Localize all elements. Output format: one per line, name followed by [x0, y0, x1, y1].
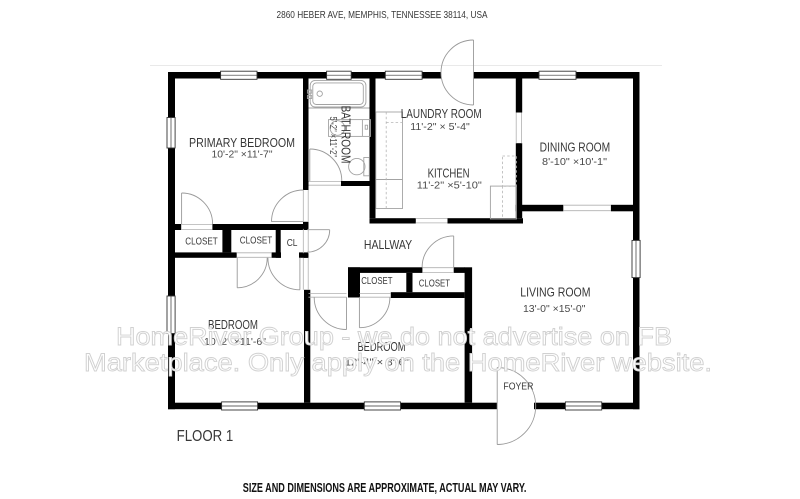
svg-text:LAUNDRY ROOM: LAUNDRY ROOM — [401, 106, 482, 121]
svg-text:13'-0" ×15'-0": 13'-0" ×15'-0" — [523, 303, 586, 315]
svg-text:CLOSET: CLOSET — [419, 278, 450, 289]
svg-text:CLOSET: CLOSET — [185, 237, 217, 248]
svg-text:SIZE AND DIMENSIONS ARE APPROX: SIZE AND DIMENSIONS ARE APPROXIMATE, ACT… — [243, 480, 527, 495]
svg-text:5'-2" ×11'-2": 5'-2" ×11'-2" — [327, 117, 339, 158]
svg-text:10'-2" ×11'-7": 10'-2" ×11'-7" — [212, 149, 273, 161]
svg-text:HALLWAY: HALLWAY — [364, 238, 413, 252]
svg-text:CLOSET: CLOSET — [361, 276, 392, 287]
svg-text:2860 HEBER AVE, MEMPHIS, TENNE: 2860 HEBER AVE, MEMPHIS, TENNESSEE 38114… — [277, 9, 488, 21]
svg-text:HomeRiver Group - we do not ad: HomeRiver Group - we do not advertise on… — [116, 323, 672, 351]
svg-text:FLOOR 1: FLOOR 1 — [177, 428, 234, 445]
svg-text:FOYER: FOYER — [503, 382, 533, 393]
svg-text:11'-2" ×5'-10": 11'-2" ×5'-10" — [417, 179, 482, 191]
svg-text:Marketplace. Only apply on the: Marketplace. Only apply on the HomeRiver… — [84, 349, 712, 377]
svg-text:11'-2" × 5'-4": 11'-2" × 5'-4" — [410, 121, 470, 133]
svg-text:BATHROOM: BATHROOM — [339, 106, 354, 164]
svg-text:CL: CL — [287, 238, 298, 249]
svg-text:KITCHEN: KITCHEN — [428, 166, 470, 181]
svg-text:8'-10" ×10'-1": 8'-10" ×10'-1" — [542, 156, 607, 168]
svg-text:CLOSET: CLOSET — [240, 235, 273, 246]
svg-text:DINING ROOM: DINING ROOM — [540, 139, 611, 154]
svg-text:LIVING ROOM: LIVING ROOM — [520, 285, 590, 300]
